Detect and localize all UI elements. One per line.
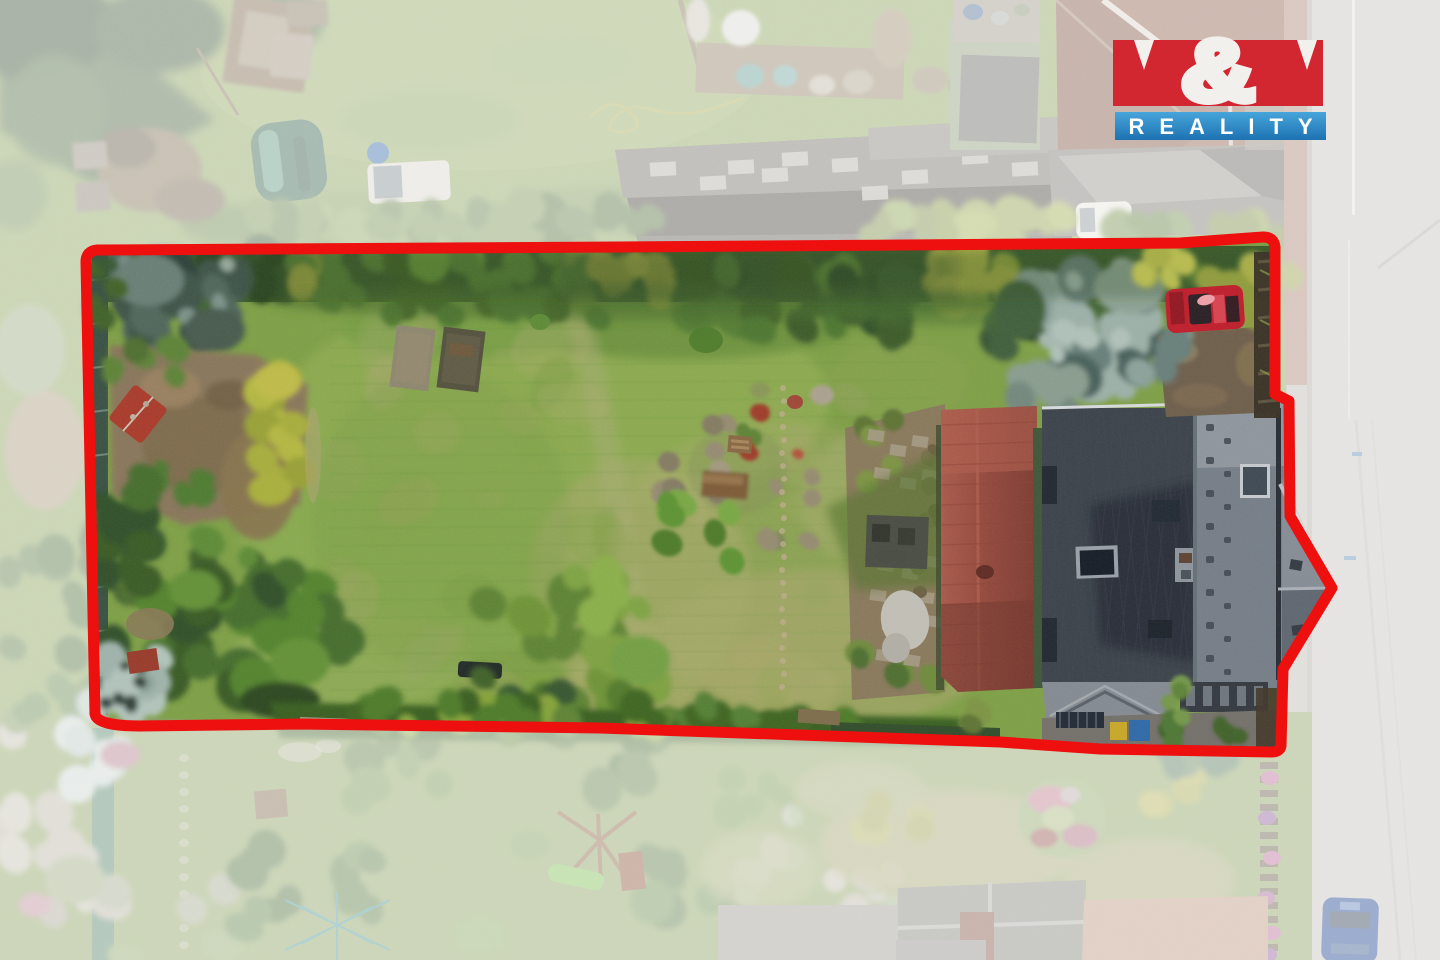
svg-text:&: &: [1181, 22, 1254, 118]
svg-text:REALITY: REALITY: [1128, 114, 1327, 139]
